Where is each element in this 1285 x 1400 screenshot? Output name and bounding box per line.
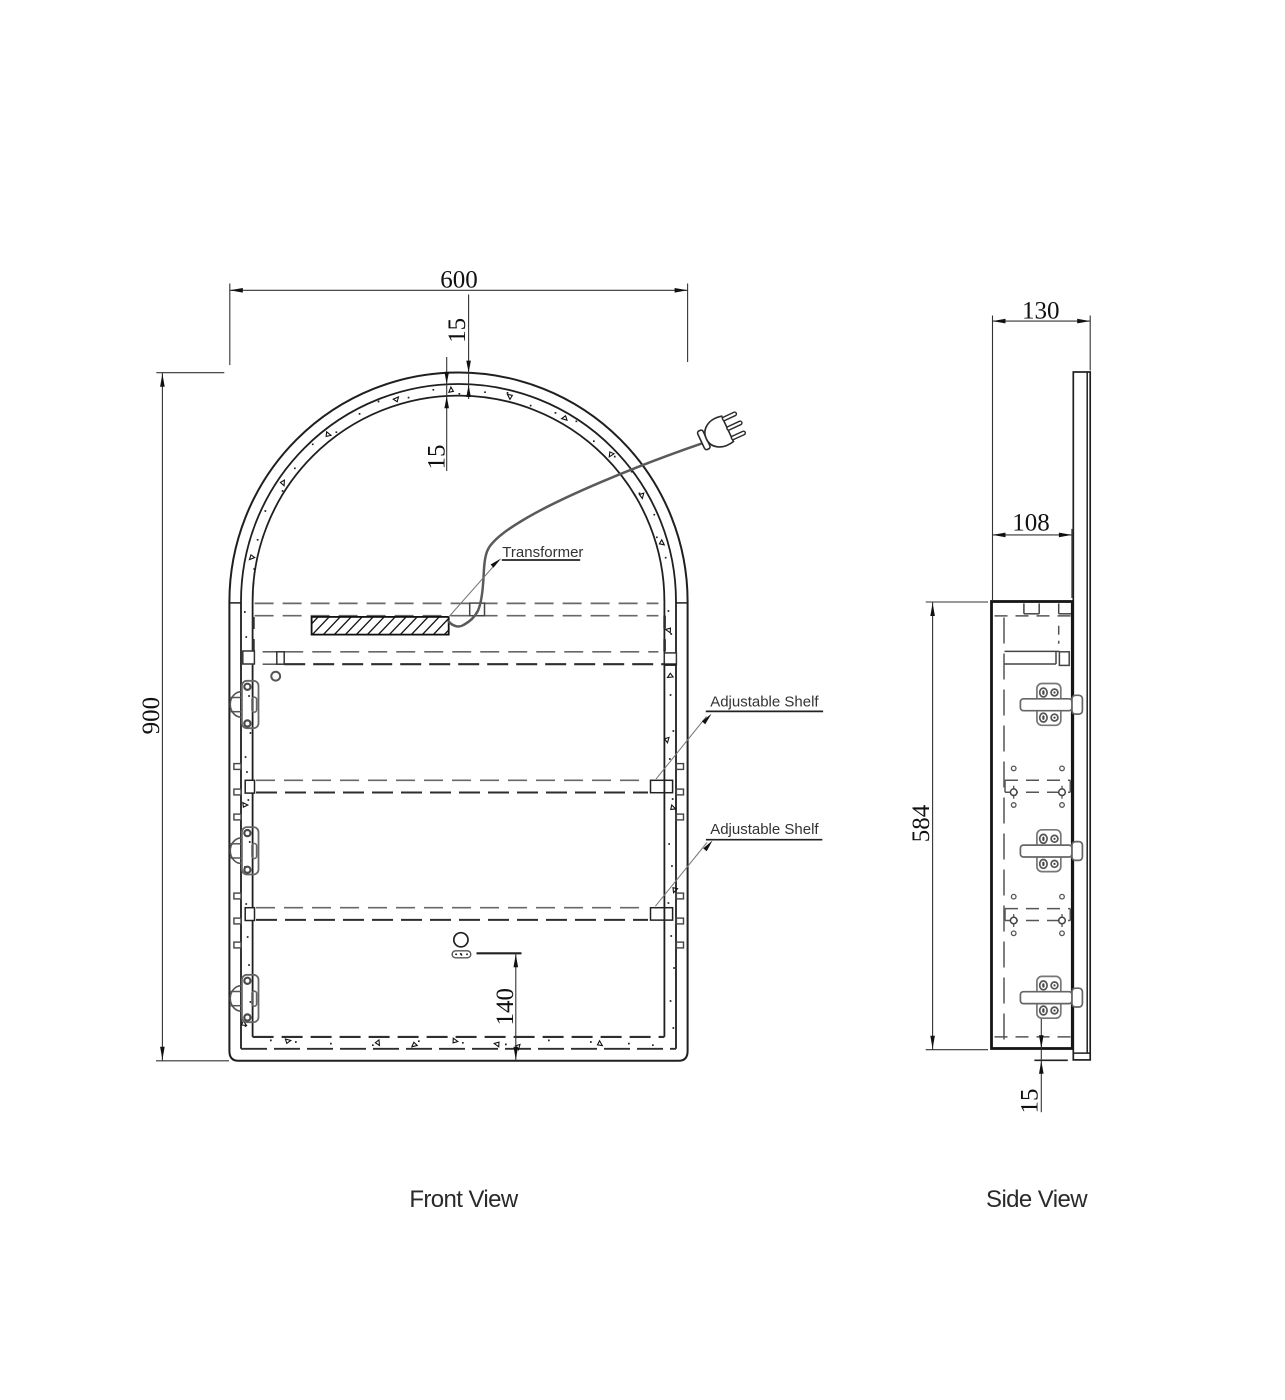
svg-text:900: 900 bbox=[138, 697, 165, 735]
svg-text:Adjustable Shelf: Adjustable Shelf bbox=[710, 821, 819, 838]
svg-text:Transformer: Transformer bbox=[502, 544, 583, 561]
svg-text:140: 140 bbox=[492, 988, 519, 1025]
svg-text:15: 15 bbox=[444, 318, 471, 343]
svg-text:15: 15 bbox=[423, 445, 450, 470]
svg-text:Front View: Front View bbox=[409, 1186, 519, 1213]
svg-text:108: 108 bbox=[1012, 510, 1050, 537]
svg-text:600: 600 bbox=[440, 267, 478, 294]
svg-text:Side View: Side View bbox=[986, 1186, 1088, 1213]
svg-text:Adjustable Shelf: Adjustable Shelf bbox=[710, 693, 819, 710]
svg-text:584: 584 bbox=[908, 804, 935, 842]
svg-text:15: 15 bbox=[1017, 1089, 1044, 1114]
svg-text:130: 130 bbox=[1022, 298, 1060, 325]
